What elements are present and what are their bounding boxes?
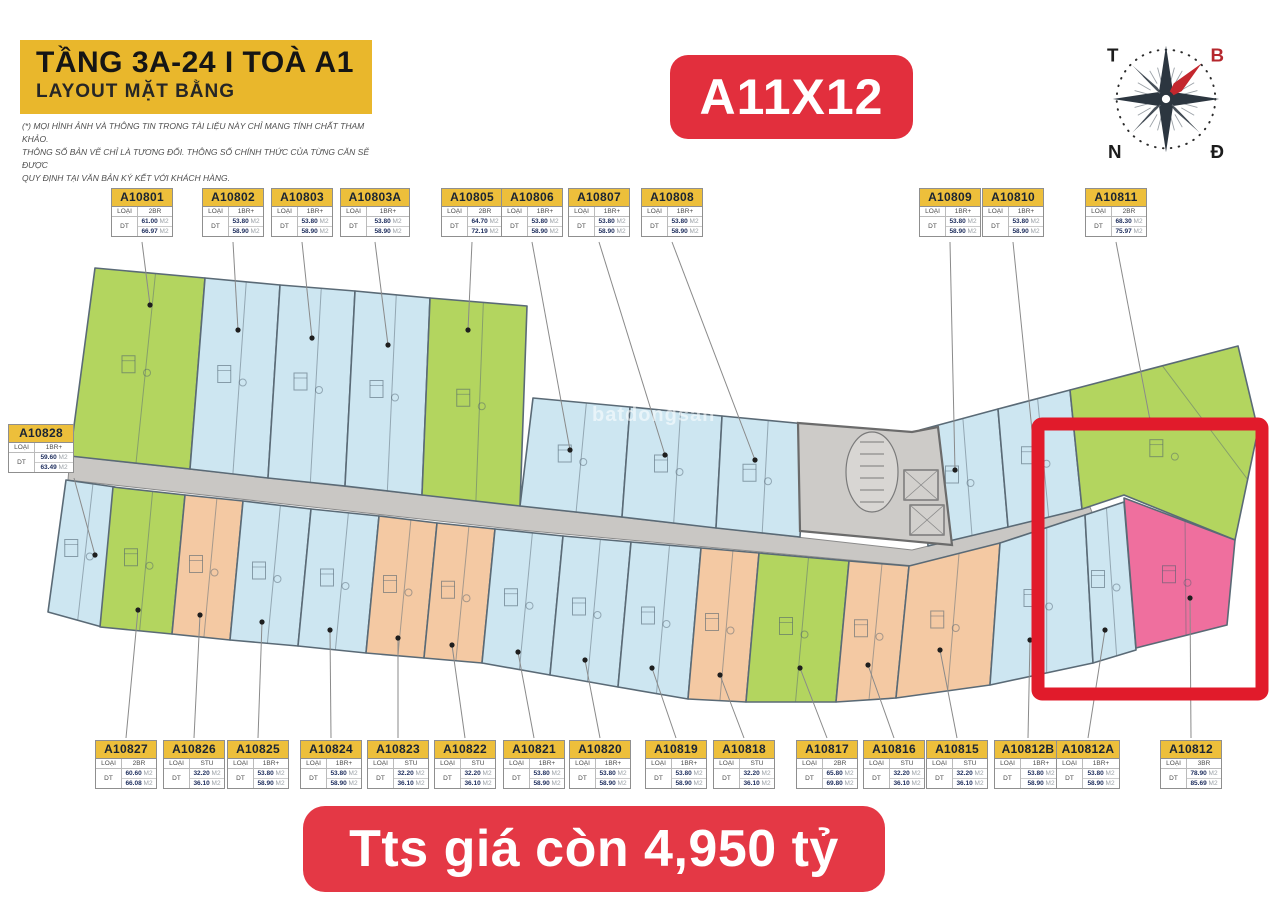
unit-area-values: 32.20 M236.10 M2 xyxy=(890,769,924,788)
unit-dot xyxy=(937,647,942,652)
unit-A10824 xyxy=(298,509,379,653)
unit-dot xyxy=(1187,595,1192,600)
unit-id: A10821 xyxy=(504,741,564,759)
unit-label-A10803: A10803LOẠI CH1BR+DT53.80 M258.90 M2 xyxy=(271,188,333,237)
unit-area-values: 53.80 M258.90 M2 xyxy=(1009,217,1043,236)
unit-area-value: 58.90 M2 xyxy=(1021,778,1061,788)
unit-area-label: DT xyxy=(1086,217,1112,236)
unit-dot xyxy=(465,327,470,332)
unit-area-value: 53.80 M2 xyxy=(298,217,332,226)
unit-label-A10809: A10809LOẠI CH1BR+DT53.80 M258.90 M2 xyxy=(919,188,981,237)
unit-area-label: DT xyxy=(1057,769,1083,788)
unit-area-value: 36.10 M2 xyxy=(394,778,428,788)
unit-area-value: 58.90 M2 xyxy=(229,226,263,236)
unit-label-A10816: A10816LOẠI CHSTUDT32.20 M236.10 M2 xyxy=(863,740,925,789)
unit-id: A10822 xyxy=(435,741,495,759)
unit-id: A10812 xyxy=(1161,741,1221,759)
unit-dot xyxy=(582,657,587,662)
unit-type-label: LOẠI CH xyxy=(228,759,254,769)
unit-type-value: 1BR+ xyxy=(596,759,630,769)
unit-area-value: 64.70 M2 xyxy=(468,217,502,226)
unit-dot xyxy=(717,672,722,677)
unit-id: A10803 xyxy=(272,189,332,207)
unit-area-label: DT xyxy=(995,769,1021,788)
unit-type-value: 1BR+ xyxy=(1021,759,1061,769)
unit-dot xyxy=(449,642,454,647)
unit-dot xyxy=(662,452,667,457)
unit-type-value: 1BR+ xyxy=(327,759,361,769)
unit-area-value: 58.90 M2 xyxy=(946,226,980,236)
unit-area-label: DT xyxy=(927,769,953,788)
unit-area-label: DT xyxy=(228,769,254,788)
unit-area-label: DT xyxy=(341,217,367,236)
unit-area-value: 32.20 M2 xyxy=(190,769,224,778)
unit-area-label: DT xyxy=(435,769,461,788)
unit-area-values: 53.80 M258.90 M2 xyxy=(668,217,702,236)
unit-type-value: STU xyxy=(890,759,924,769)
unit-area-values: 64.70 M272.19 M2 xyxy=(468,217,502,236)
compass-rose-icon: T B N Đ xyxy=(1096,30,1236,168)
unit-type-label: LOẠI CH xyxy=(920,207,946,217)
unit-area-label: DT xyxy=(368,769,394,788)
unit-type-value: 1BR+ xyxy=(298,207,332,217)
unit-area-value: 66.08 M2 xyxy=(122,778,156,788)
unit-dot xyxy=(567,447,572,452)
unit-type-value: 1BR+ xyxy=(254,759,288,769)
compass-label-south: N xyxy=(1108,141,1122,162)
unit-id: A10809 xyxy=(920,189,980,207)
unit-dot xyxy=(515,649,520,654)
highlight-unit-tag: A11X12 xyxy=(670,55,913,139)
disclaimer-text: (*) MỌI HÌNH ẢNH VÀ THÔNG TIN TRONG TÀI … xyxy=(22,120,372,185)
unit-type-value: 2BR xyxy=(138,207,172,217)
unit-area-value: 53.80 M2 xyxy=(229,217,263,226)
unit-type-value: 1BR+ xyxy=(229,207,263,217)
unit-label-A10827: A10827LOẠI CH2BRDT60.60 M266.08 M2 xyxy=(95,740,157,789)
disclaimer-line: THÔNG SỐ BẢN VẼ CHỈ LÀ TƯƠNG ĐỐI. THÔNG … xyxy=(22,146,372,172)
unit-type-value: 1BR+ xyxy=(528,207,562,217)
unit-type-value: 1BR+ xyxy=(672,759,706,769)
unit-area-value: 36.10 M2 xyxy=(190,778,224,788)
unit-type-value: 1BR+ xyxy=(35,443,73,453)
unit-area-values: 53.80 M258.90 M2 xyxy=(298,217,332,236)
unit-area-value: 53.80 M2 xyxy=(1083,769,1119,778)
unit-id: A10802 xyxy=(203,189,263,207)
unit-id: A10815 xyxy=(927,741,987,759)
unit-area-values: 78.90 M285.69 M2 xyxy=(1187,769,1221,788)
unit-type-value: 1BR+ xyxy=(595,207,629,217)
unit-label-A10812B: A10812BLOẠI CH1BR+DT53.80 M258.90 M2 xyxy=(994,740,1062,789)
unit-type-label: LOẠI CH xyxy=(203,207,229,217)
unit-id: A10803A xyxy=(341,189,409,207)
unit-area-values: 53.80 M258.90 M2 xyxy=(672,769,706,788)
unit-id: A10808 xyxy=(642,189,702,207)
unit-type-label: LOẠI CH xyxy=(1161,759,1187,769)
unit-area-value: 58.90 M2 xyxy=(1009,226,1043,236)
unit-dot xyxy=(1102,627,1107,632)
unit-id: A10810 xyxy=(983,189,1043,207)
unit-area-values: 53.80 M258.90 M2 xyxy=(254,769,288,788)
unit-area-values: 32.20 M236.10 M2 xyxy=(953,769,987,788)
unit-area-values: 53.80 M258.90 M2 xyxy=(1083,769,1119,788)
unit-id: A10812B xyxy=(995,741,1061,759)
unit-type-label: LOẠI CH xyxy=(1086,207,1112,217)
unit-id: A10824 xyxy=(301,741,361,759)
unit-area-label: DT xyxy=(714,769,740,788)
unit-dot xyxy=(865,662,870,667)
unit-area-values: 53.80 M258.90 M2 xyxy=(530,769,564,788)
unit-type-label: LOẠI CH xyxy=(642,207,668,217)
unit-type-value: 1BR+ xyxy=(530,759,564,769)
title-banner: TẦNG 3A-24 I TOÀ A1 LAYOUT MẶT BẰNG xyxy=(20,40,372,114)
unit-area-value: 63.49 M2 xyxy=(35,462,73,472)
unit-type-label: LOẠI CH xyxy=(112,207,138,217)
unit-area-value: 53.80 M2 xyxy=(1021,769,1061,778)
unit-label-A10823: A10823LOẠI CHSTUDT32.20 M236.10 M2 xyxy=(367,740,429,789)
unit-area-values: 53.80 M258.90 M2 xyxy=(946,217,980,236)
unit-area-label: DT xyxy=(203,217,229,236)
unit-id: A10817 xyxy=(797,741,857,759)
price-text: Tts giá còn 4,950 tỷ xyxy=(349,819,839,879)
unit-type-label: LOẠI CH xyxy=(646,759,672,769)
unit-area-label: DT xyxy=(642,217,668,236)
unit-id: A10801 xyxy=(112,189,172,207)
unit-dot xyxy=(259,619,264,624)
unit-label-A10807: A10807LOẠI CH1BR+DT53.80 M258.90 M2 xyxy=(568,188,630,237)
unit-type-label: LOẠI CH xyxy=(502,207,528,217)
unit-label-A10805: A10805LOẠI CH2BRDT64.70 M272.19 M2 xyxy=(441,188,503,237)
unit-A10806 xyxy=(520,398,630,517)
unit-area-label: DT xyxy=(112,217,138,236)
unit-area-value: 36.10 M2 xyxy=(890,778,924,788)
unit-area-values: 65.80 M269.80 M2 xyxy=(823,769,857,788)
unit-A10827 xyxy=(100,487,185,634)
unit-area-label: DT xyxy=(569,217,595,236)
unit-area-values: 68.30 M275.97 M2 xyxy=(1112,217,1146,236)
unit-area-value: 78.90 M2 xyxy=(1187,769,1221,778)
unit-area-values: 32.20 M236.10 M2 xyxy=(394,769,428,788)
unit-A10802 xyxy=(190,278,280,478)
unit-area-label: DT xyxy=(504,769,530,788)
unit-A10807 xyxy=(622,407,722,528)
unit-area-value: 53.80 M2 xyxy=(528,217,562,226)
unit-area-label: DT xyxy=(864,769,890,788)
unit-type-label: LOẠI CH xyxy=(1057,759,1083,769)
unit-type-label: LOẠI CH xyxy=(435,759,461,769)
unit-label-A10818: A10818LOẠI CHSTUDT32.20 M236.10 M2 xyxy=(713,740,775,789)
unit-A10820 xyxy=(550,536,631,687)
unit-id: A10827 xyxy=(96,741,156,759)
unit-A10803A xyxy=(345,291,430,495)
unit-type-value: 1BR+ xyxy=(668,207,702,217)
unit-type-label: LOẠI CH xyxy=(301,759,327,769)
floorplan-page: TẦNG 3A-24 I TOÀ A1 LAYOUT MẶT BẰNG (*) … xyxy=(0,0,1280,906)
unit-dot xyxy=(385,342,390,347)
unit-id: A10819 xyxy=(646,741,706,759)
unit-label-A10808: A10808LOẠI CH1BR+DT53.80 M258.90 M2 xyxy=(641,188,703,237)
unit-dot xyxy=(649,665,654,670)
unit-type-label: LOẠI CH xyxy=(995,759,1021,769)
unit-label-A10806: A10806LOẠI CH1BR+DT53.80 M258.90 M2 xyxy=(501,188,563,237)
unit-A10821 xyxy=(482,529,563,675)
unit-area-value: 32.20 M2 xyxy=(890,769,924,778)
unit-area-values: 53.80 M258.90 M2 xyxy=(229,217,263,236)
disclaimer-line: QUY ĐỊNH TẠI VĂN BẢN KÝ KẾT VỚI KHÁCH HÀ… xyxy=(22,172,372,185)
unit-label-A10826: A10826LOẠI CHSTUDT32.20 M236.10 M2 xyxy=(163,740,225,789)
unit-label-A10801: A10801LOẠI CH2BRDT61.00 M266.97 M2 xyxy=(111,188,173,237)
unit-type-label: LOẠI CH xyxy=(368,759,394,769)
unit-type-label: LOẠI CH xyxy=(570,759,596,769)
unit-type-value: STU xyxy=(394,759,428,769)
unit-area-value: 53.80 M2 xyxy=(254,769,288,778)
unit-label-A10821: A10821LOẠI CH1BR+DT53.80 M258.90 M2 xyxy=(503,740,565,789)
unit-area-value: 53.80 M2 xyxy=(668,217,702,226)
layout-subtitle: LAYOUT MẶT BẰNG xyxy=(36,80,372,104)
unit-type-label: LOẠI CH xyxy=(864,759,890,769)
unit-area-value: 58.90 M2 xyxy=(595,226,629,236)
unit-id: A10805 xyxy=(442,189,502,207)
unit-type-value: STU xyxy=(740,759,774,769)
unit-area-values: 53.80 M258.90 M2 xyxy=(528,217,562,236)
unit-type-label: LOẠI CH xyxy=(504,759,530,769)
unit-dot xyxy=(752,457,757,462)
unit-area-value: 53.80 M2 xyxy=(530,769,564,778)
unit-area-value: 32.20 M2 xyxy=(461,769,495,778)
unit-area-value: 60.60 M2 xyxy=(122,769,156,778)
unit-A10801 xyxy=(70,268,205,469)
unit-label-A10810: A10810LOẠI CH1BR+DT53.80 M258.90 M2 xyxy=(982,188,1044,237)
unit-dot xyxy=(797,665,802,670)
unit-type-value: 2BR xyxy=(122,759,156,769)
unit-area-value: 53.80 M2 xyxy=(327,769,361,778)
compass-label-east: Đ xyxy=(1210,141,1224,162)
unit-type-label: LOẠI CH xyxy=(9,443,35,453)
unit-area-values: 59.60 M263.49 M2 xyxy=(35,453,73,472)
unit-label-A10828: A10828LOẠI CH1BR+DT59.60 M263.49 M2 xyxy=(8,424,74,473)
unit-type-label: LOẠI CH xyxy=(442,207,468,217)
unit-id: A10806 xyxy=(502,189,562,207)
unit-area-value: 59.60 M2 xyxy=(35,453,73,462)
unit-type-label: LOẠI CH xyxy=(927,759,953,769)
unit-id: A10826 xyxy=(164,741,224,759)
unit-type-value: STU xyxy=(461,759,495,769)
unit-type-label: LOẠI CH xyxy=(797,759,823,769)
unit-area-value: 58.90 M2 xyxy=(327,778,361,788)
unit-area-value: 61.00 M2 xyxy=(138,217,172,226)
unit-area-label: DT xyxy=(442,217,468,236)
unit-area-label: DT xyxy=(570,769,596,788)
unit-area-label: DT xyxy=(502,217,528,236)
unit-area-values: 60.60 M266.08 M2 xyxy=(122,769,156,788)
unit-area-value: 53.80 M2 xyxy=(946,217,980,226)
unit-area-value: 32.20 M2 xyxy=(740,769,774,778)
unit-area-values: 61.00 M266.97 M2 xyxy=(138,217,172,236)
unit-area-values: 53.80 M258.90 M2 xyxy=(327,769,361,788)
unit-area-value: 36.10 M2 xyxy=(461,778,495,788)
unit-label-A10817: A10817LOẠI CH2BRDT65.80 M269.80 M2 xyxy=(796,740,858,789)
unit-area-label: DT xyxy=(96,769,122,788)
unit-area-label: DT xyxy=(164,769,190,788)
unit-type-value: STU xyxy=(190,759,224,769)
unit-A10819 xyxy=(618,542,701,699)
unit-label-A10803A: A10803ALOẠI CH1BR+DT53.80 M258.90 M2 xyxy=(340,188,410,237)
unit-area-label: DT xyxy=(920,217,946,236)
unit-area-value: 58.90 M2 xyxy=(298,226,332,236)
unit-area-value: 85.69 M2 xyxy=(1187,778,1221,788)
unit-A10825 xyxy=(230,501,311,646)
unit-label-A10825: A10825LOẠI CH1BR+DT53.80 M258.90 M2 xyxy=(227,740,289,789)
unit-A10805 xyxy=(422,298,527,506)
unit-area-value: 58.90 M2 xyxy=(668,226,702,236)
unit-label-A10820: A10820LOẠI CH1BR+DT53.80 M258.90 M2 xyxy=(569,740,631,789)
unit-dot xyxy=(92,552,97,557)
unit-area-label: DT xyxy=(646,769,672,788)
unit-type-label: LOẠI CH xyxy=(714,759,740,769)
unit-id: A10825 xyxy=(228,741,288,759)
unit-area-value: 58.90 M2 xyxy=(596,778,630,788)
unit-type-value: 1BR+ xyxy=(1083,759,1119,769)
unit-area-value: 53.80 M2 xyxy=(367,217,409,226)
unit-area-value: 58.90 M2 xyxy=(1083,778,1119,788)
unit-type-label: LOẠI CH xyxy=(341,207,367,217)
unit-id: A10828 xyxy=(9,425,73,443)
unit-label-A10819: A10819LOẠI CH1BR+DT53.80 M258.90 M2 xyxy=(645,740,707,789)
unit-type-label: LOẠI CH xyxy=(164,759,190,769)
unit-dot xyxy=(235,327,240,332)
unit-dot xyxy=(309,335,314,340)
unit-dot xyxy=(395,635,400,640)
compass-label-west: T xyxy=(1107,45,1119,66)
unit-area-value: 53.80 M2 xyxy=(672,769,706,778)
unit-id: A10820 xyxy=(570,741,630,759)
unit-area-values: 53.80 M258.90 M2 xyxy=(1021,769,1061,788)
unit-type-value: STU xyxy=(953,759,987,769)
unit-type-label: LOẠI CH xyxy=(983,207,1009,217)
stair-oval xyxy=(846,432,898,512)
unit-A10817 xyxy=(746,553,849,702)
unit-label-A10822: A10822LOẠI CHSTUDT32.20 M236.10 M2 xyxy=(434,740,496,789)
unit-area-value: 53.80 M2 xyxy=(1009,217,1043,226)
unit-area-value: 32.20 M2 xyxy=(394,769,428,778)
unit-area-label: DT xyxy=(983,217,1009,236)
unit-area-value: 58.90 M2 xyxy=(254,778,288,788)
unit-dot xyxy=(327,627,332,632)
unit-area-value: 68.30 M2 xyxy=(1112,217,1146,226)
unit-dot xyxy=(135,607,140,612)
unit-id: A10823 xyxy=(368,741,428,759)
unit-id: A10807 xyxy=(569,189,629,207)
unit-id: A10816 xyxy=(864,741,924,759)
unit-area-value: 58.90 M2 xyxy=(528,226,562,236)
unit-label-A10824: A10824LOẠI CH1BR+DT53.80 M258.90 M2 xyxy=(300,740,362,789)
unit-A10815 xyxy=(896,543,1000,698)
unit-type-value: 1BR+ xyxy=(1009,207,1043,217)
unit-area-values: 32.20 M236.10 M2 xyxy=(740,769,774,788)
unit-dot xyxy=(952,467,957,472)
unit-label-A10811: A10811LOẠI CH2BRDT68.30 M275.97 M2 xyxy=(1085,188,1147,237)
unit-area-label: DT xyxy=(1161,769,1187,788)
unit-type-value: 2BR xyxy=(823,759,857,769)
unit-type-value: 2BR xyxy=(1112,207,1146,217)
unit-A10808 xyxy=(716,416,806,537)
unit-area-value: 53.80 M2 xyxy=(595,217,629,226)
unit-area-value: 36.10 M2 xyxy=(953,778,987,788)
unit-area-value: 65.80 M2 xyxy=(823,769,857,778)
compass-label-north: B xyxy=(1210,45,1224,66)
unit-area-values: 32.20 M236.10 M2 xyxy=(461,769,495,788)
unit-type-value: 1BR+ xyxy=(367,207,409,217)
unit-type-label: LOẠI CH xyxy=(96,759,122,769)
disclaimer-line: (*) MỌI HÌNH ẢNH VÀ THÔNG TIN TRONG TÀI … xyxy=(22,120,372,146)
unit-type-value: 2BR xyxy=(468,207,502,217)
unit-area-value: 66.97 M2 xyxy=(138,226,172,236)
core-block xyxy=(798,423,952,545)
unit-area-values: 53.80 M258.90 M2 xyxy=(595,217,629,236)
unit-dot xyxy=(197,612,202,617)
unit-area-label: DT xyxy=(301,769,327,788)
unit-id: A10812A xyxy=(1057,741,1119,759)
unit-area-value: 58.90 M2 xyxy=(672,778,706,788)
highlight-unit-tag-text: A11X12 xyxy=(700,68,884,126)
floor-title: TẦNG 3A-24 I TOÀ A1 xyxy=(36,46,372,80)
unit-area-value: 58.90 M2 xyxy=(530,778,564,788)
unit-label-A10802: A10802LOẠI CH1BR+DT53.80 M258.90 M2 xyxy=(202,188,264,237)
unit-area-label: DT xyxy=(797,769,823,788)
unit-A10803 xyxy=(268,285,355,486)
unit-area-values: 53.80 M258.90 M2 xyxy=(367,217,409,236)
unit-area-value: 53.80 M2 xyxy=(596,769,630,778)
unit-label-A10812A: A10812ALOẠI CH1BR+DT53.80 M258.90 M2 xyxy=(1056,740,1120,789)
unit-area-value: 75.97 M2 xyxy=(1112,226,1146,236)
unit-area-values: 53.80 M258.90 M2 xyxy=(596,769,630,788)
unit-type-label: LOẠI CH xyxy=(272,207,298,217)
unit-dot xyxy=(147,302,152,307)
unit-area-label: DT xyxy=(9,453,35,472)
unit-type-label: LOẠI CH xyxy=(569,207,595,217)
unit-label-A10812: A10812LOẠI CH3BRDT78.90 M285.69 M2 xyxy=(1160,740,1222,789)
unit-type-value: 3BR xyxy=(1187,759,1221,769)
unit-type-value: 1BR+ xyxy=(946,207,980,217)
unit-id: A10811 xyxy=(1086,189,1146,207)
unit-area-value: 58.90 M2 xyxy=(367,226,409,236)
unit-id: A10818 xyxy=(714,741,774,759)
price-banner: Tts giá còn 4,950 tỷ xyxy=(303,806,885,892)
unit-area-value: 72.19 M2 xyxy=(468,226,502,236)
unit-area-value: 36.10 M2 xyxy=(740,778,774,788)
unit-label-A10815: A10815LOẠI CHSTUDT32.20 M236.10 M2 xyxy=(926,740,988,789)
unit-area-value: 69.80 M2 xyxy=(823,778,857,788)
unit-area-values: 32.20 M236.10 M2 xyxy=(190,769,224,788)
unit-area-value: 32.20 M2 xyxy=(953,769,987,778)
unit-area-label: DT xyxy=(272,217,298,236)
